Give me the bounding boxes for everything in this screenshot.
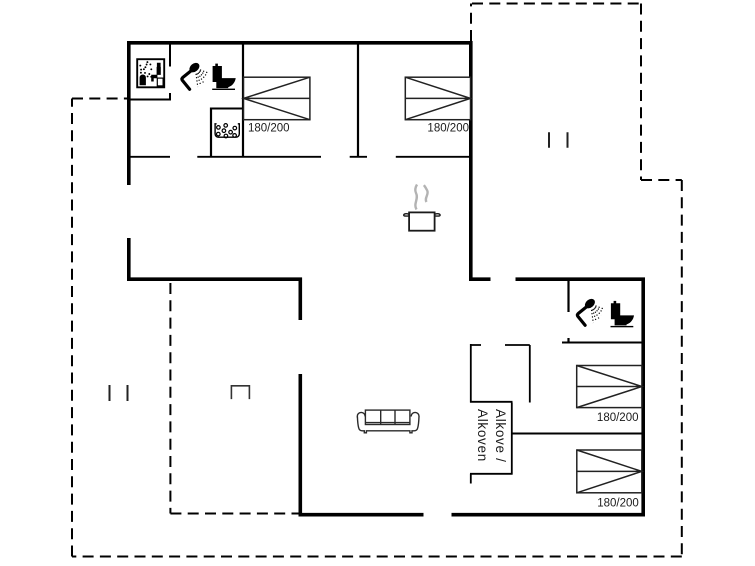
svg-text:180/200: 180/200: [597, 497, 639, 509]
svg-text:180/200: 180/200: [427, 123, 469, 135]
svg-text:Alkove /Alkoven: Alkove /Alkoven: [475, 409, 508, 463]
svg-text:180/200: 180/200: [597, 412, 639, 424]
svg-text:180/200: 180/200: [248, 123, 290, 135]
